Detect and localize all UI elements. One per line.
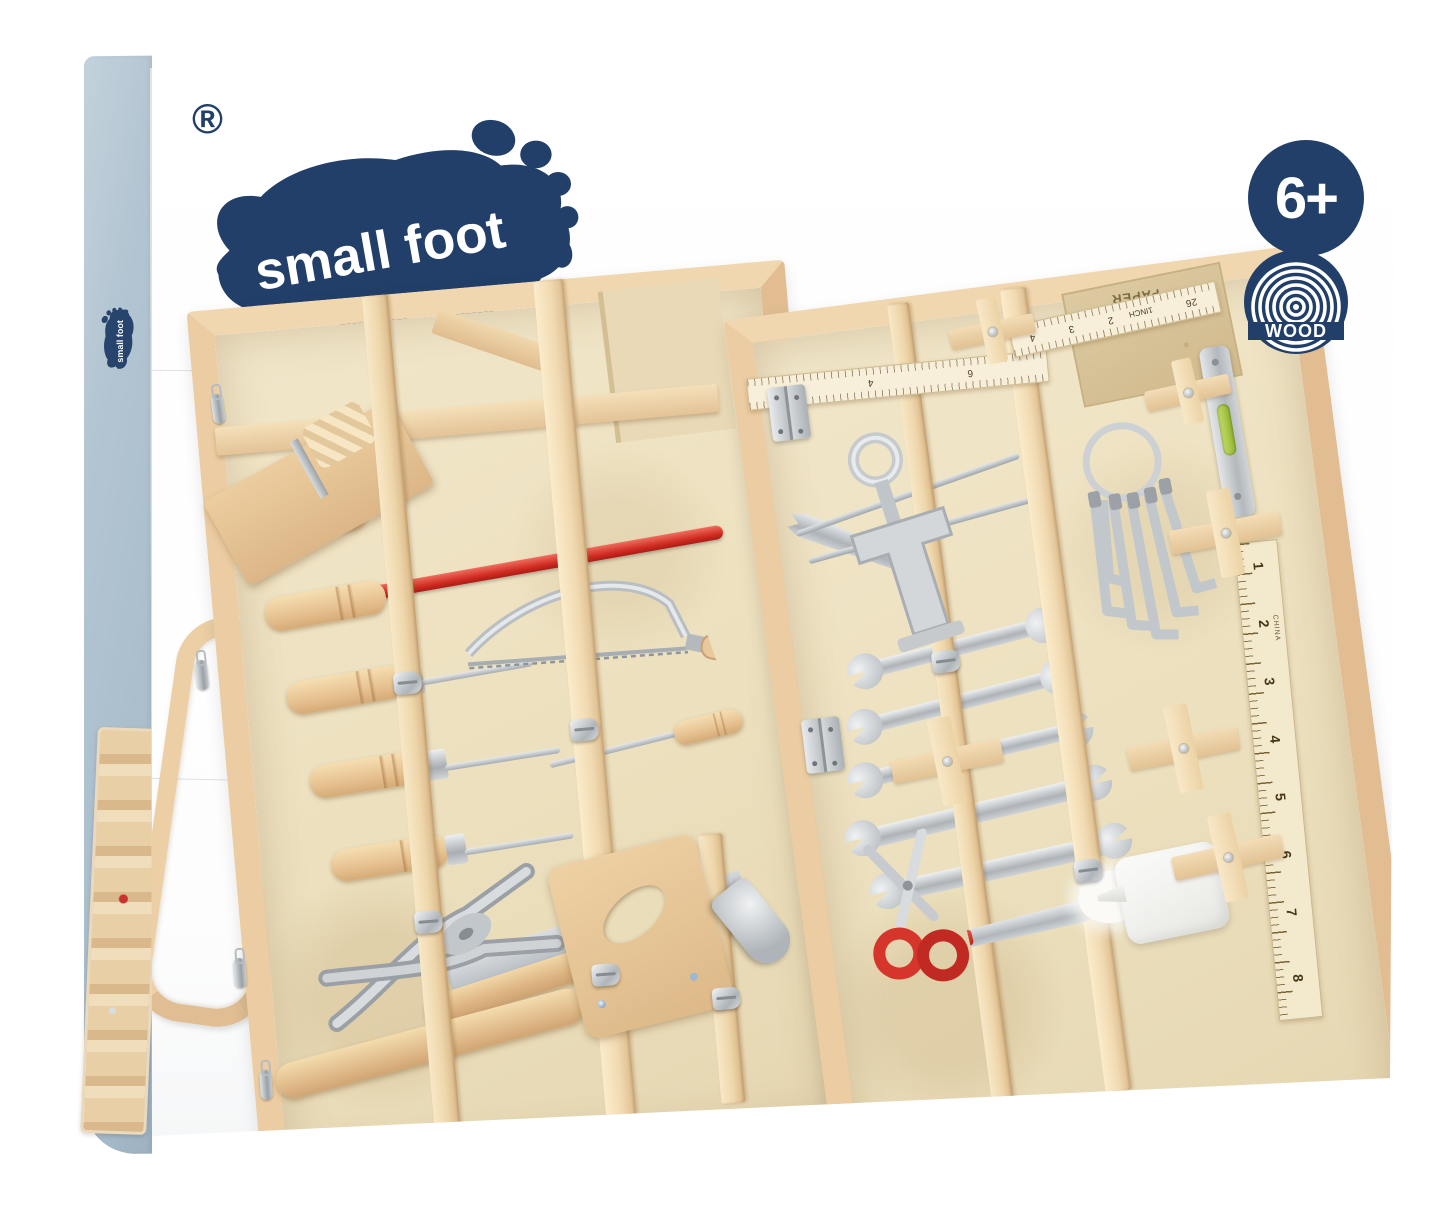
toolbox-photo: 10 4 6 4 3 2 1INCH 26 PAPER (168, 218, 1378, 1143)
metal-clasp (233, 958, 247, 989)
tool-handle (263, 578, 389, 633)
wooden-ruler: 1 2 3 4 5 6 7 8 CHINA (1233, 539, 1323, 1021)
age-badge-label: 6+ (1275, 165, 1337, 232)
metal-clip (711, 986, 741, 1010)
metal-clasp (259, 1070, 273, 1101)
holder-cross (890, 738, 1005, 784)
hinge (801, 716, 845, 774)
side-product-thumbnail (80, 727, 164, 1135)
holder-cross (1126, 725, 1241, 771)
svg-text:small foot: small foot (115, 320, 125, 363)
wooden-holder (431, 308, 553, 372)
metal-clip (393, 671, 423, 695)
box-front-panel: ® small foot 6+ (150, 58, 1396, 1140)
screw-clamp (773, 401, 1016, 692)
wood-rings-icon: WOOD (1244, 250, 1348, 354)
box-top-fold (142, 54, 1404, 85)
age-badge: 6+ (1248, 140, 1364, 256)
chisel (284, 663, 408, 716)
metal-clip (569, 718, 599, 742)
metal-clip (591, 963, 621, 987)
side-brand-logo: small foot (90, 304, 145, 378)
metal-clip (414, 910, 444, 934)
wood-badge-label: WOOD (1265, 321, 1327, 341)
footprint-logo-icon: small foot (90, 304, 145, 378)
wood-badge: WOOD (1244, 250, 1348, 354)
hinge (767, 384, 811, 442)
box-side-panel: small foot (84, 56, 152, 1155)
